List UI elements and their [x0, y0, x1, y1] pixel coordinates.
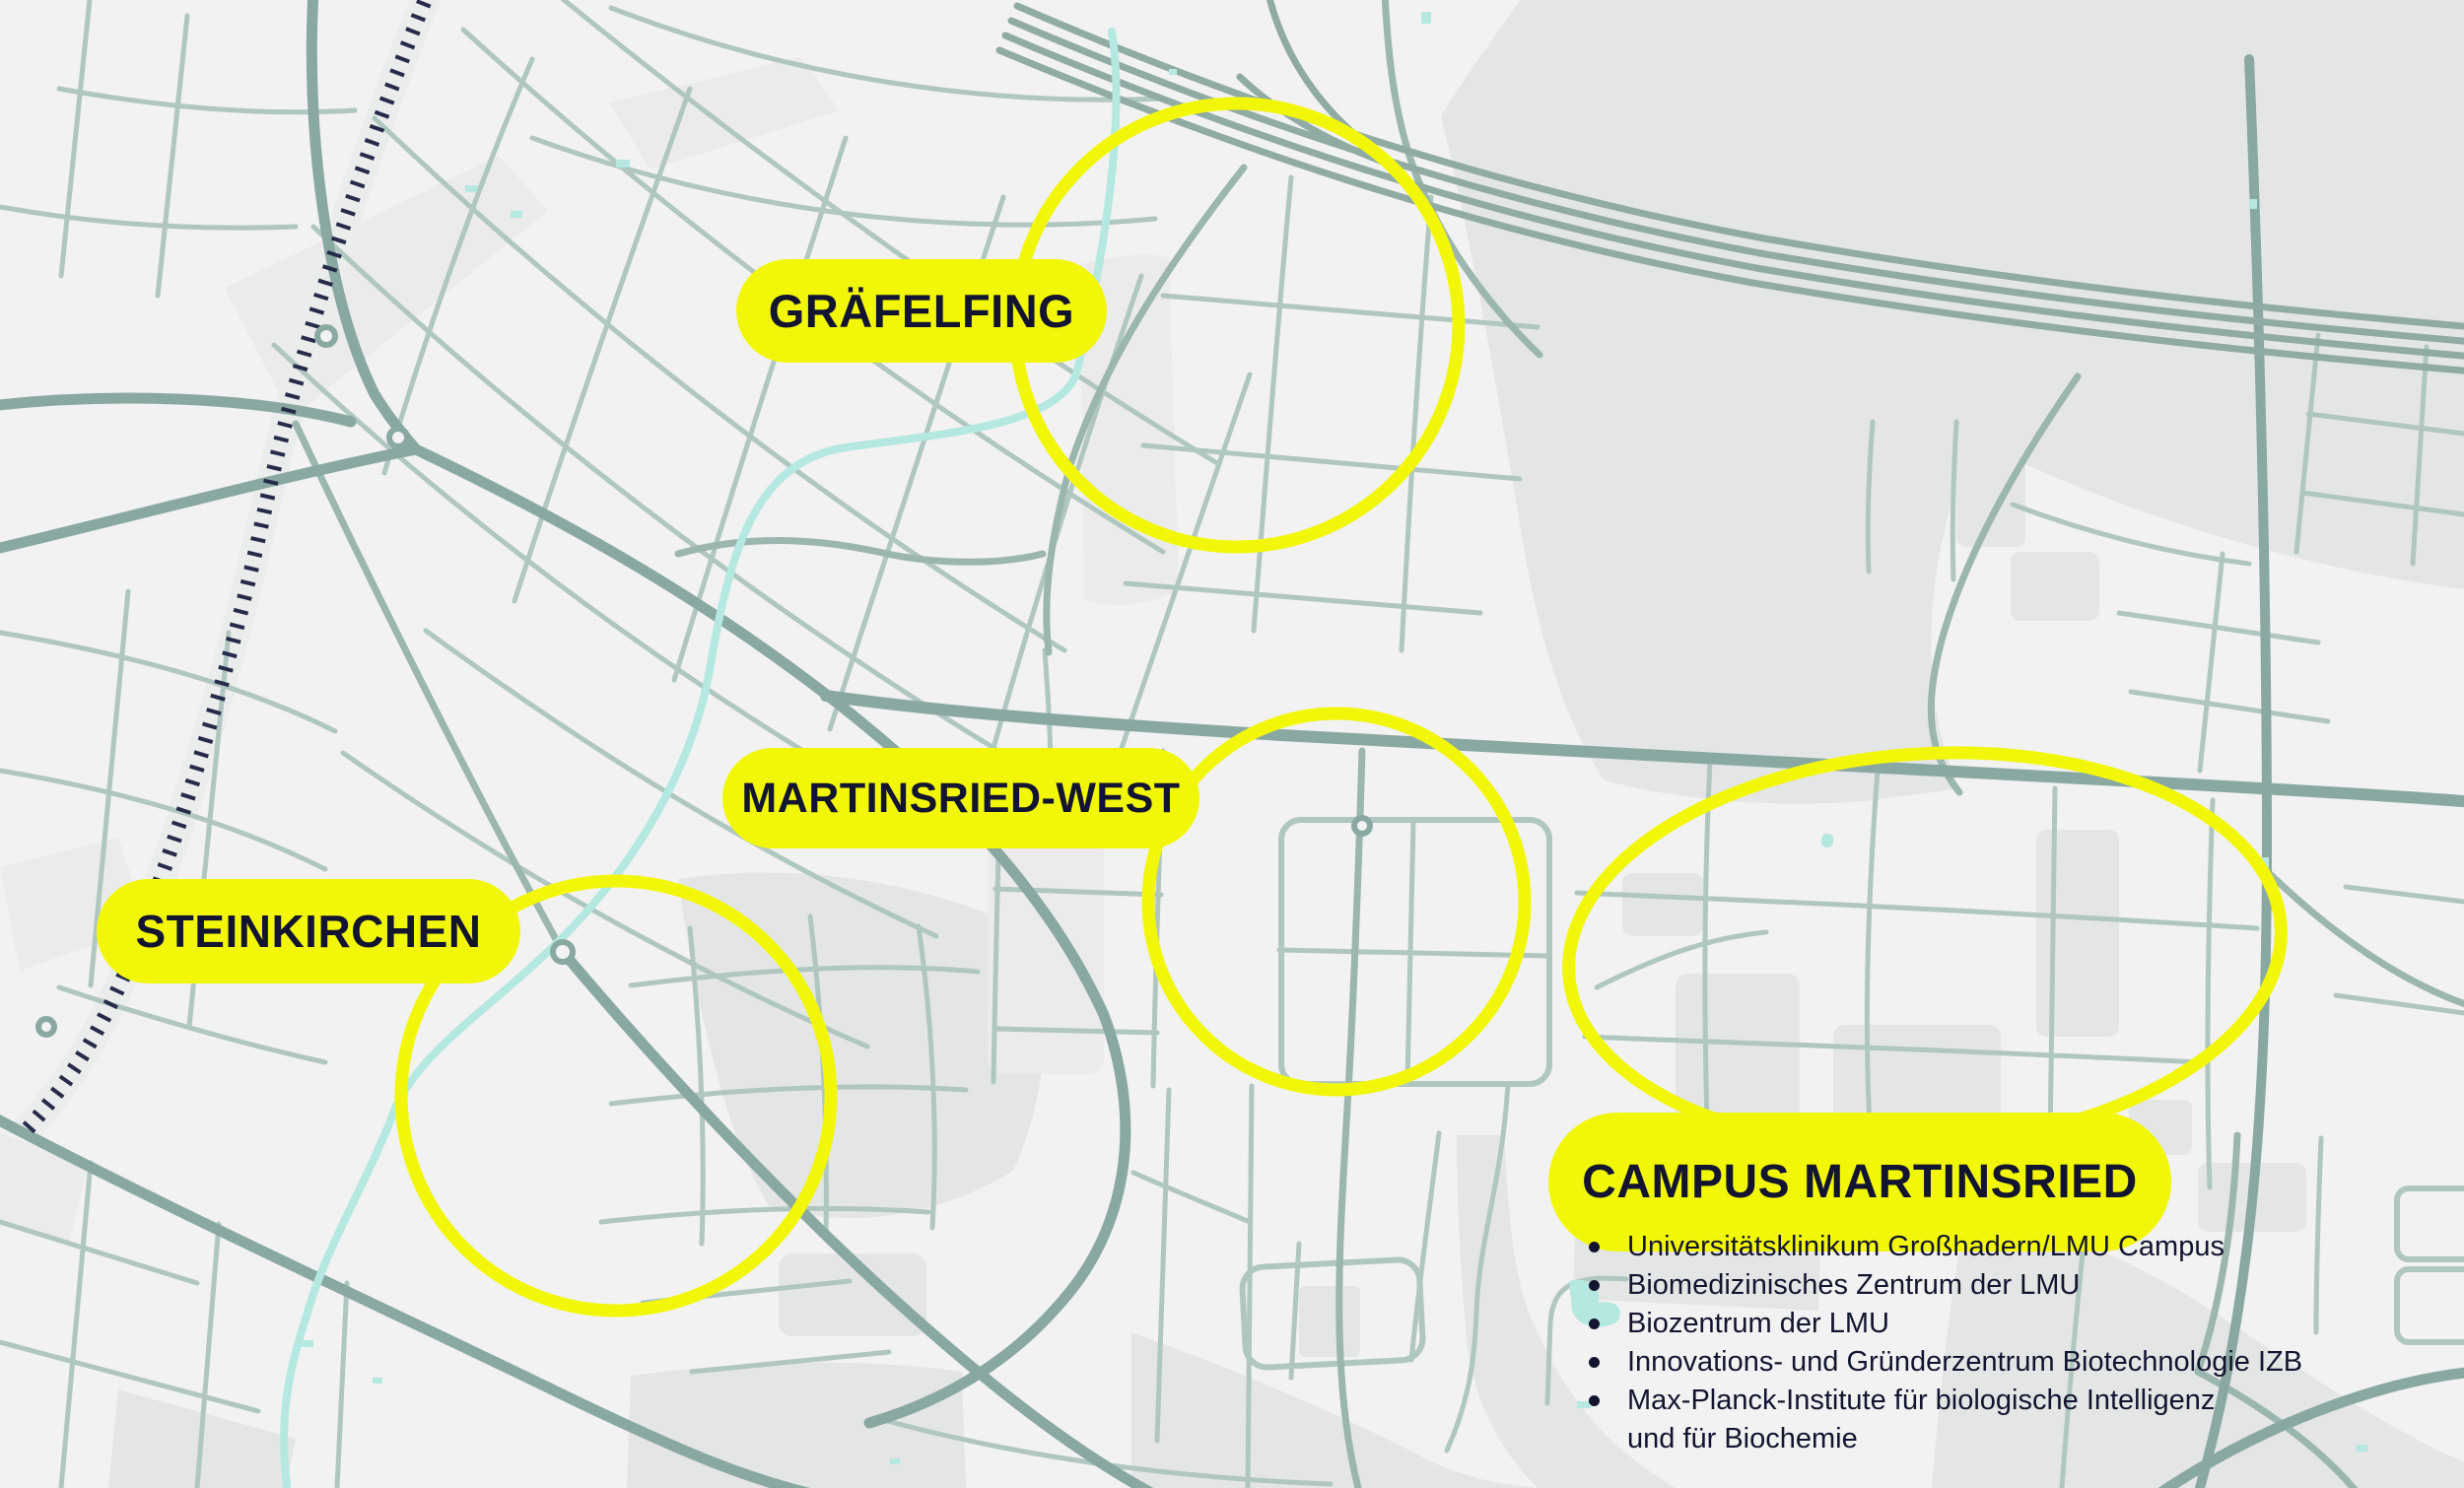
- region-label-text: GRÄFELFING: [769, 284, 1074, 338]
- bullet-icon: [1589, 1319, 1600, 1329]
- list-item-text: Innovations- und Gründerzentrum Biotechn…: [1627, 1343, 2302, 1382]
- list-item: Innovations- und Gründerzentrum Biotechn…: [1583, 1343, 2352, 1382]
- bullet-icon: [1589, 1357, 1600, 1368]
- list-item: Biomedizinisches Zentrum der LMU: [1583, 1266, 2352, 1305]
- region-label-graefelfing: GRÄFELFING: [736, 259, 1107, 363]
- region-label-text: STEINKIRCHEN: [135, 905, 481, 958]
- list-item-text: Universitätsklinikum Großhadern/LMU Camp…: [1627, 1228, 2224, 1266]
- list-item: Biozentrum der LMU: [1583, 1305, 2352, 1343]
- list-item-text: Biomedizinisches Zentrum der LMU: [1627, 1266, 2080, 1305]
- highlight-circle-martinsried-west: [1148, 713, 1525, 1090]
- list-item-text: Max-Planck-Institute für biologische Int…: [1627, 1382, 2215, 1458]
- bullet-icon: [1589, 1395, 1600, 1406]
- bullet-icon: [1589, 1242, 1600, 1252]
- map-canvas: GRÄFELFING MARTINSRIED-WEST STEINKIRCHEN…: [0, 0, 2464, 1488]
- region-label-text: CAMPUS MARTINSRIED: [1582, 1155, 2138, 1209]
- list-item-text: Biozentrum der LMU: [1627, 1305, 1889, 1343]
- region-label-steinkirchen: STEINKIRCHEN: [97, 879, 520, 983]
- campus-institution-list: Universitätsklinikum Großhadern/LMU Camp…: [1583, 1228, 2352, 1458]
- region-label-martinsried-west: MARTINSRIED-WEST: [722, 748, 1199, 848]
- list-item: Universitätsklinikum Großhadern/LMU Camp…: [1583, 1228, 2352, 1266]
- region-label-text: MARTINSRIED-WEST: [741, 775, 1180, 823]
- bullet-icon: [1589, 1280, 1600, 1291]
- list-item: Max-Planck-Institute für biologische Int…: [1583, 1382, 2352, 1458]
